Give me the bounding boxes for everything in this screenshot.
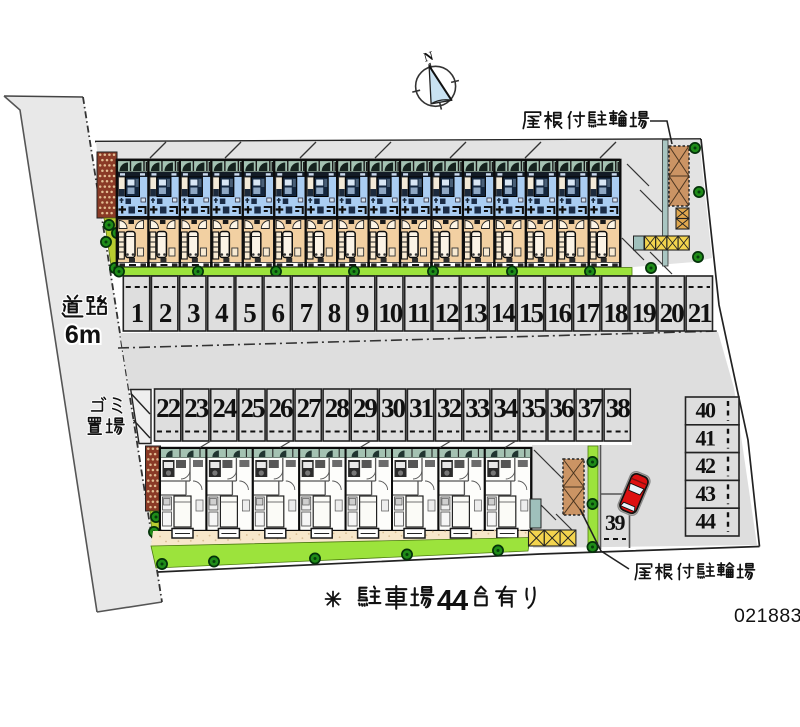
svg-text:1: 1: [131, 298, 144, 328]
svg-text:41: 41: [696, 425, 716, 450]
svg-text:6m: 6m: [65, 321, 101, 349]
svg-text:25: 25: [240, 393, 265, 423]
svg-text:9: 9: [356, 298, 369, 328]
svg-text:18: 18: [603, 298, 628, 328]
svg-text:6: 6: [271, 298, 284, 328]
svg-text:22: 22: [156, 393, 181, 423]
svg-text:39: 39: [605, 510, 626, 535]
svg-text:34: 34: [493, 393, 518, 423]
svg-text:12: 12: [435, 298, 460, 328]
svg-text:23: 23: [184, 393, 209, 423]
svg-text:11: 11: [407, 298, 430, 328]
svg-text:36: 36: [550, 393, 575, 423]
svg-text:26: 26: [269, 393, 294, 423]
svg-text:2: 2: [159, 298, 172, 328]
svg-text:20: 20: [660, 298, 685, 328]
svg-text:17: 17: [575, 298, 600, 328]
svg-text:33: 33: [465, 393, 490, 423]
svg-text:15: 15: [519, 298, 544, 328]
svg-text:021883: 021883: [734, 605, 800, 627]
svg-text:7: 7: [300, 298, 313, 328]
svg-text:10: 10: [378, 298, 403, 328]
svg-text:4: 4: [215, 298, 228, 328]
svg-text:30: 30: [381, 393, 406, 423]
svg-text:37: 37: [578, 393, 603, 423]
svg-text:27: 27: [297, 393, 322, 423]
svg-text:8: 8: [328, 298, 341, 328]
svg-text:40: 40: [696, 398, 717, 423]
svg-text:28: 28: [325, 393, 350, 423]
svg-text:32: 32: [437, 393, 462, 423]
svg-text:43: 43: [696, 481, 717, 506]
svg-text:16: 16: [547, 298, 572, 328]
svg-text:42: 42: [696, 453, 717, 478]
svg-text:3: 3: [187, 298, 200, 328]
svg-text:24: 24: [212, 393, 237, 423]
svg-text:21: 21: [688, 298, 713, 328]
svg-text:44: 44: [437, 585, 468, 617]
svg-text:14: 14: [491, 298, 516, 328]
svg-text:13: 13: [463, 298, 488, 328]
svg-text:29: 29: [353, 393, 378, 423]
svg-text:31: 31: [409, 393, 434, 423]
svg-text:5: 5: [243, 298, 256, 328]
svg-text:19: 19: [632, 298, 657, 328]
svg-text:38: 38: [606, 393, 631, 423]
svg-text:44: 44: [696, 509, 717, 534]
svg-text:35: 35: [521, 393, 546, 423]
